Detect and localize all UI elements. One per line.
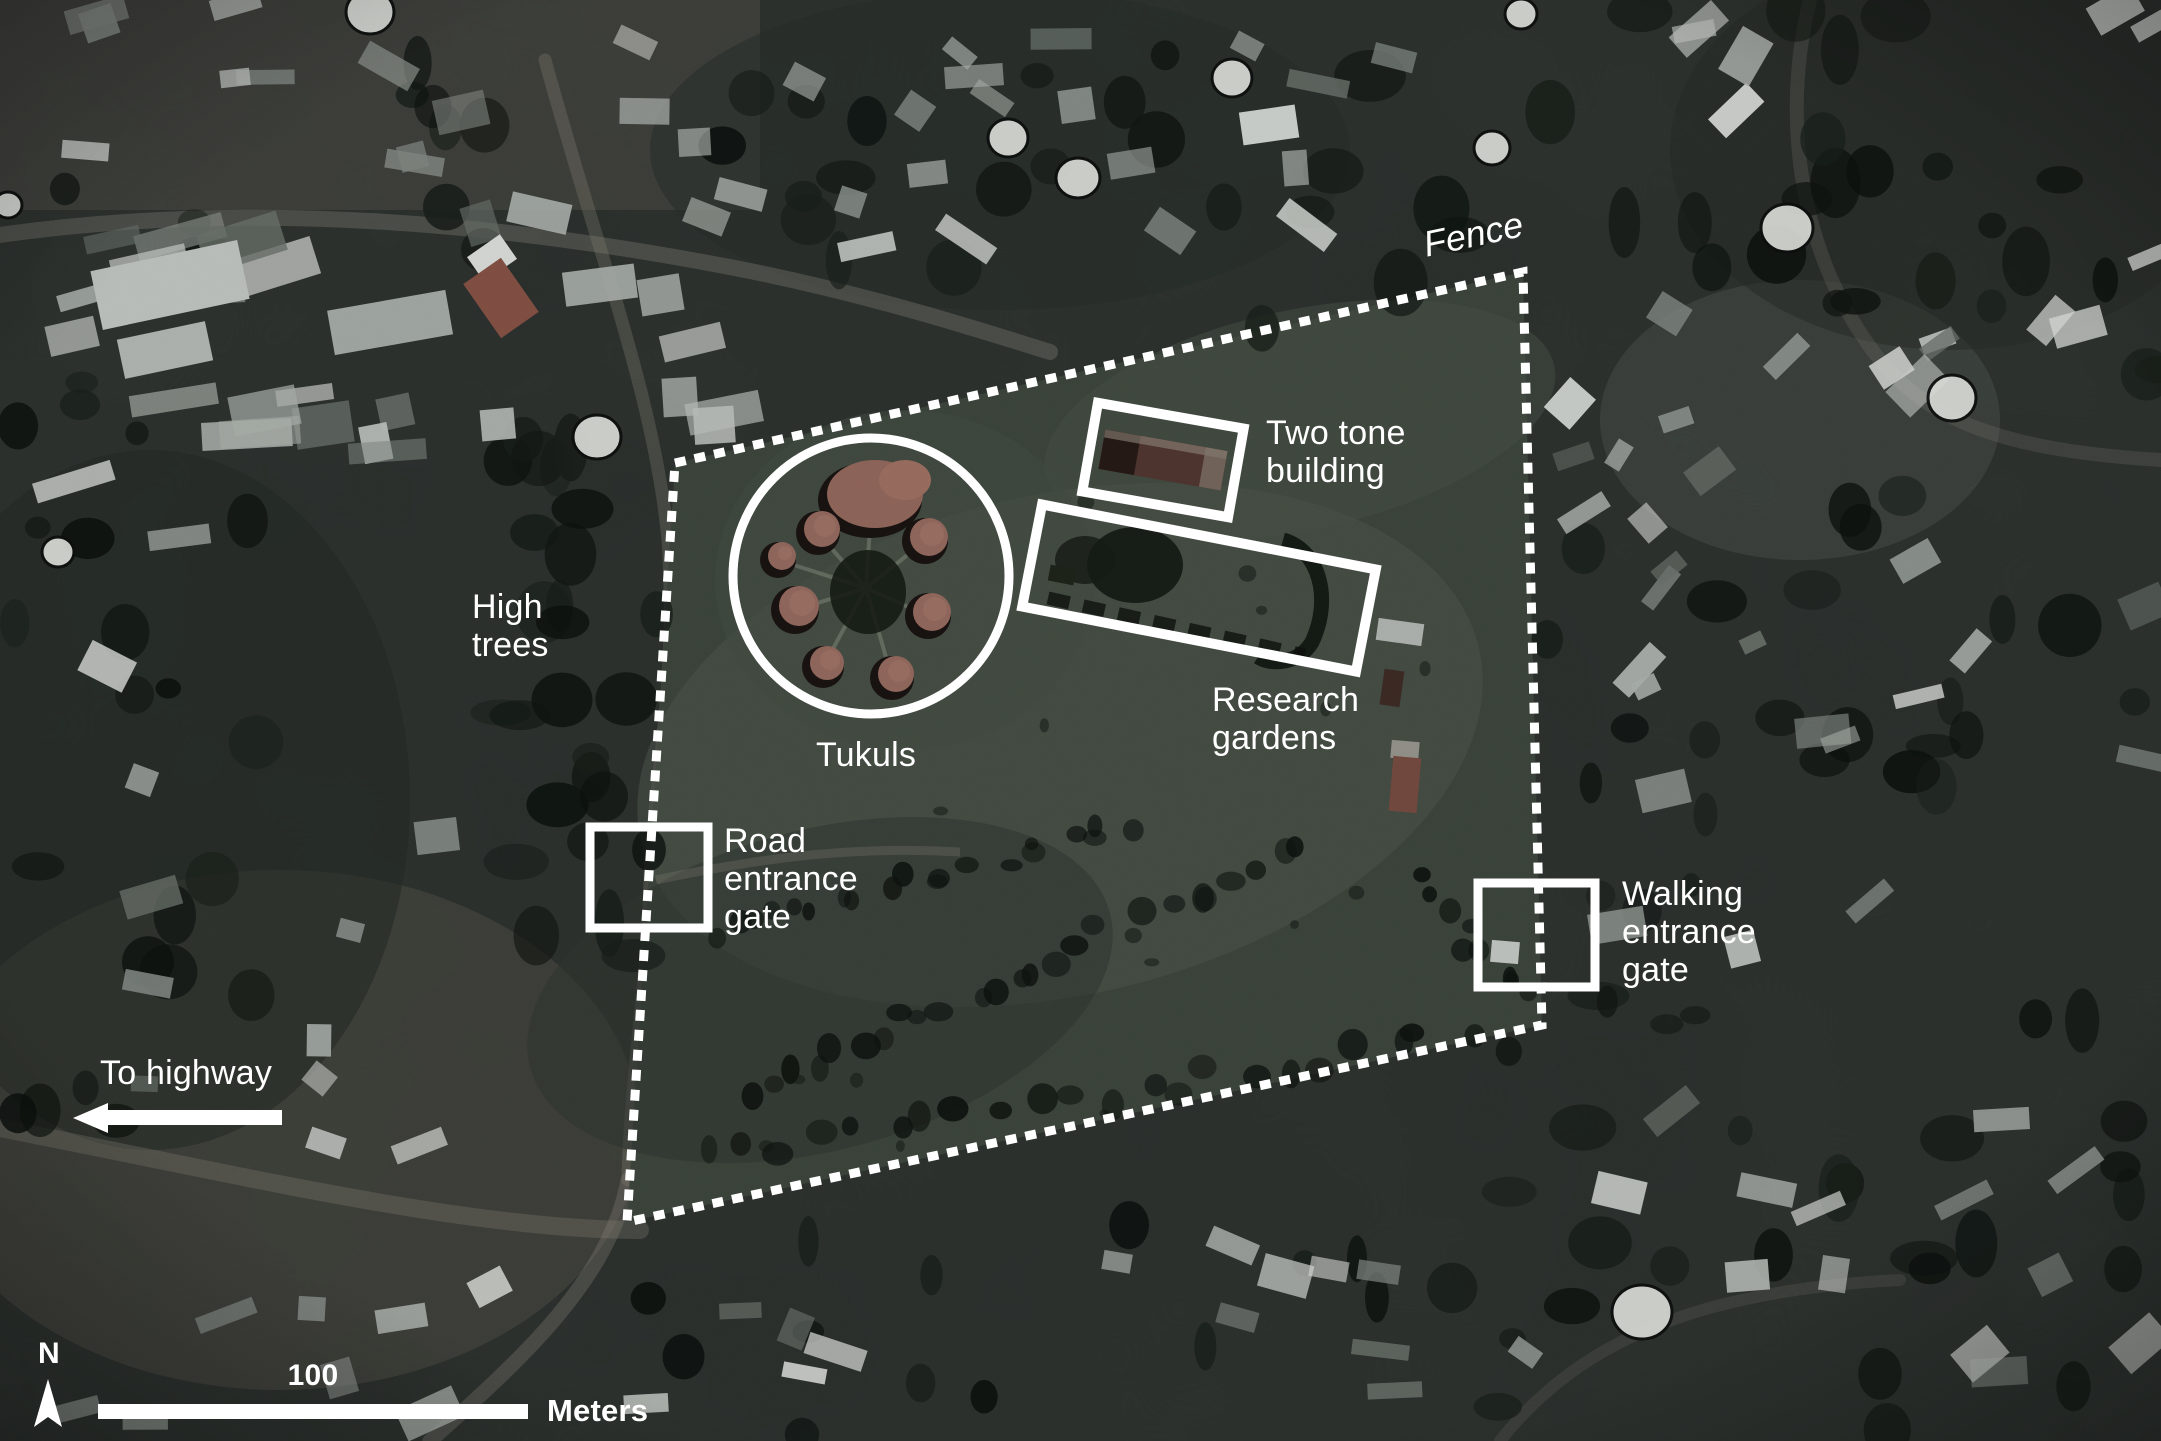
road-entrance-gate-label: Road entrance gate xyxy=(724,822,858,936)
tukuls-label: Tukuls xyxy=(816,736,916,774)
research-gardens-label: Research gardens xyxy=(1212,681,1359,757)
north-indicator: N xyxy=(38,1338,60,1370)
walking-entrance-gate-label: Walking entrance gate xyxy=(1622,875,1756,989)
scale-value: 100 xyxy=(288,1360,339,1392)
satellite-map: Fence Two tone building Tukuls Research … xyxy=(0,0,2161,1441)
scale-unit: Meters xyxy=(547,1392,648,1430)
scale-bar xyxy=(98,1404,528,1419)
high-trees-label: High trees xyxy=(472,588,549,664)
satellite-imagery xyxy=(0,0,2161,1441)
to-highway-label: To highway xyxy=(100,1054,272,1092)
two-tone-building-label: Two tone building xyxy=(1266,414,1406,490)
